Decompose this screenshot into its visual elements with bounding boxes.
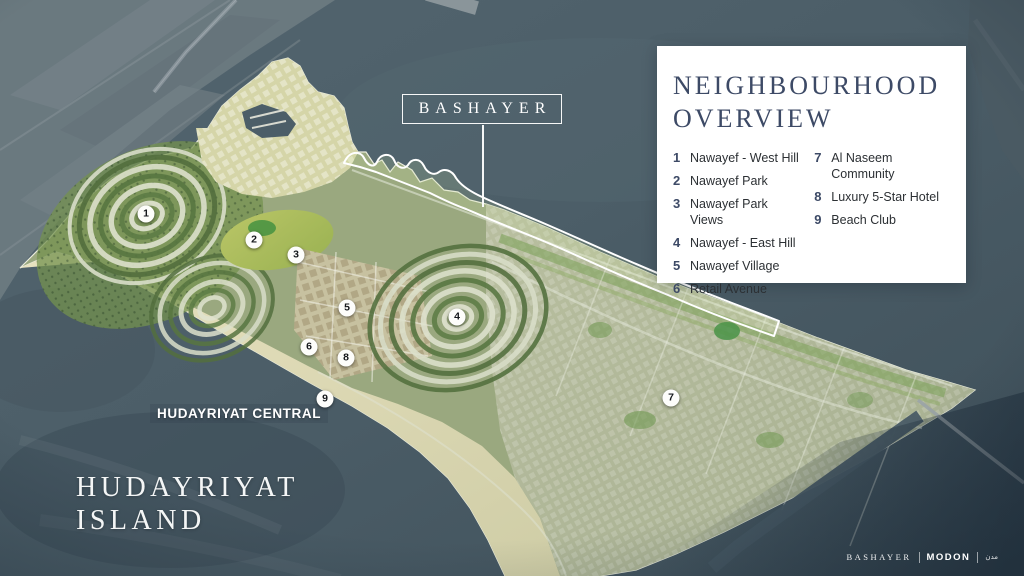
legend-item-number: 1 [673, 150, 690, 166]
map-marker-5[interactable]: 5 [339, 300, 356, 317]
modon-logo: MODON [927, 552, 971, 563]
masterplan-screenshot: BASHAYER NEIGHBOURHOOD OVERVIEW 1Nawayef… [0, 0, 1024, 576]
footer-divider [977, 552, 978, 563]
legend-item-label: Nawayef - East Hill [690, 235, 796, 251]
legend-item-label: Nawayef Park [690, 173, 768, 189]
bashayer-logo: BASHAYER [846, 552, 911, 562]
island-label-line2: ISLAND [76, 504, 299, 537]
legend-item-number: 5 [673, 258, 690, 274]
legend-column-left: 1Nawayef - West Hill2Nawayef Park3Nawaye… [673, 150, 800, 304]
map-marker-4[interactable]: 4 [449, 309, 466, 326]
legend-item-5: 5Nawayef Village [673, 258, 800, 274]
legend-title-line2: OVERVIEW [673, 102, 952, 135]
bashayer-callout-leader-line [482, 125, 484, 207]
map-marker-3[interactable]: 3 [288, 247, 305, 264]
legend-column-right: 7Al Naseem Community8Luxury 5-Star Hotel… [814, 150, 952, 304]
legend-item-number: 4 [673, 235, 690, 251]
legend-item-number: 9 [814, 212, 831, 228]
map-marker-7[interactable]: 7 [663, 390, 680, 407]
legend-item-8: 8Luxury 5-Star Hotel [814, 189, 952, 205]
legend-item-7: 7Al Naseem Community [814, 150, 952, 182]
legend-item-label: Al Naseem Community [831, 150, 894, 182]
bashayer-callout-label: BASHAYER [413, 100, 552, 118]
map-marker-9[interactable]: 9 [317, 391, 334, 408]
map-marker-8[interactable]: 8 [338, 350, 355, 367]
map-marker-2[interactable]: 2 [246, 232, 263, 249]
footer-brand-bar: BASHAYER MODON مدن [846, 549, 998, 565]
legend-item-number: 2 [673, 173, 690, 189]
legend-item-number: 8 [814, 189, 831, 205]
legend-item-label: Nawayef Village [690, 258, 779, 274]
legend-item-label: Luxury 5-Star Hotel [831, 189, 939, 205]
legend-item-label: Nawayef - West Hill [690, 150, 799, 166]
footer-divider [919, 552, 920, 563]
legend-item-6: 6Retail Avenue [673, 281, 800, 297]
island-label-line1: HUDAYRIYAT [76, 471, 299, 504]
legend-items: 1Nawayef - West Hill2Nawayef Park3Nawaye… [673, 150, 952, 304]
modon-arabic-mark: مدن [985, 553, 998, 561]
legend-item-label: Beach Club [831, 212, 896, 228]
legend-item-2: 2Nawayef Park [673, 173, 800, 189]
map-marker-1[interactable]: 1 [138, 206, 155, 223]
legend-title: NEIGHBOURHOOD OVERVIEW [673, 69, 952, 135]
legend-item-3: 3Nawayef Park Views [673, 196, 800, 228]
hudayriyat-island-label: HUDAYRIYAT ISLAND [76, 471, 299, 537]
legend-title-line1: NEIGHBOURHOOD [673, 69, 952, 102]
legend-item-1: 1Nawayef - West Hill [673, 150, 800, 166]
legend-item-9: 9Beach Club [814, 212, 952, 228]
map-marker-6[interactable]: 6 [301, 339, 318, 356]
bashayer-callout: BASHAYER [402, 94, 562, 124]
legend-item-4: 4Nawayef - East Hill [673, 235, 800, 251]
hudayriyat-central-label: HUDAYRIYAT CENTRAL [150, 404, 328, 423]
legend-item-number: 3 [673, 196, 690, 228]
legend-item-label: Nawayef Park Views [690, 196, 800, 228]
legend-item-label: Retail Avenue [690, 281, 767, 297]
legend-item-number: 6 [673, 281, 690, 297]
legend-item-number: 7 [814, 150, 831, 182]
neighbourhood-overview-panel: NEIGHBOURHOOD OVERVIEW 1Nawayef - West H… [657, 46, 966, 283]
